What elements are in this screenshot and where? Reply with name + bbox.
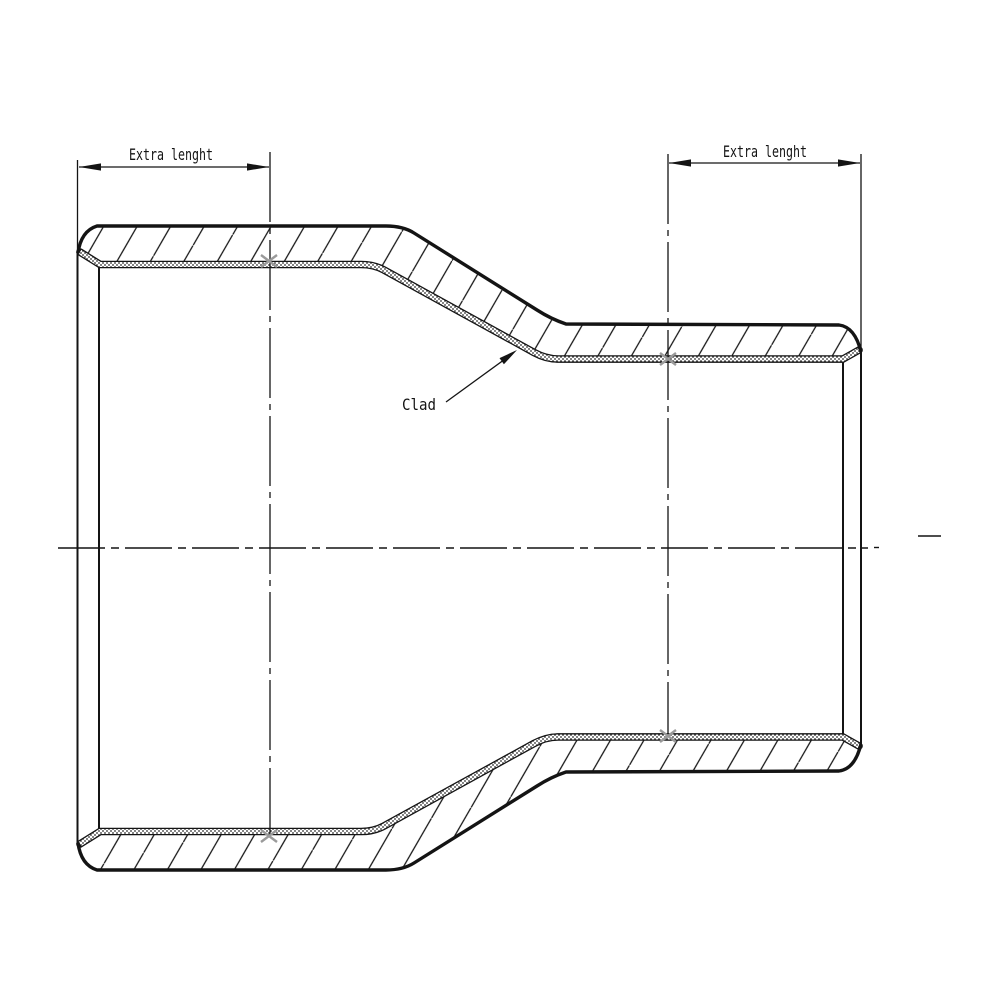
clad-leader-arrow (500, 350, 518, 364)
dimension-right-arrow-right (838, 159, 860, 166)
dimension-left: Extra lenght (79, 145, 269, 171)
clad-label: Clad (402, 395, 436, 414)
dimension-left-label: Extra lenght (129, 145, 213, 164)
clad-reducer-section-drawing: Extra lenght Extra lenght Clad (0, 0, 1000, 1000)
drawing-canvas: Extra lenght Extra lenght Clad (0, 0, 1000, 1000)
dimension-right-label: Extra lenght (723, 142, 807, 161)
dimension-right: Extra lenght (669, 142, 860, 167)
dimension-right-arrow-left (669, 159, 691, 166)
dimension-left-arrow-left (79, 163, 101, 170)
lower-wall-section (78, 734, 861, 870)
upper-wall-section (78, 226, 861, 362)
clad-callout: Clad (402, 350, 517, 414)
dimension-left-arrow-right (247, 163, 269, 170)
